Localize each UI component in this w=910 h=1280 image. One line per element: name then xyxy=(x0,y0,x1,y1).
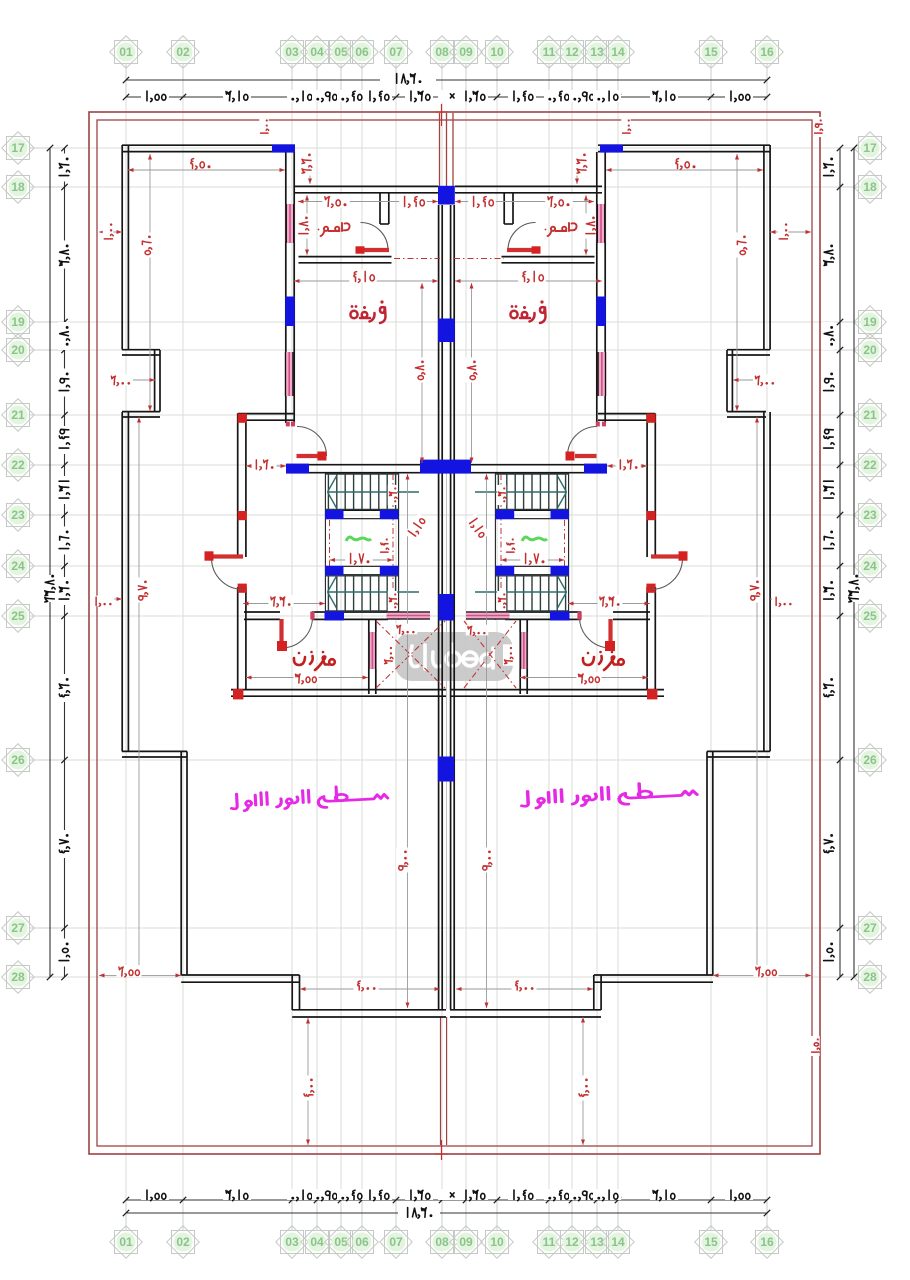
svg-text:04: 04 xyxy=(310,45,324,59)
svg-text:01: 01 xyxy=(119,1235,133,1249)
svg-text:08: 08 xyxy=(435,45,449,59)
svg-text:17: 17 xyxy=(11,141,25,155)
svg-text:12: 12 xyxy=(565,45,579,59)
svg-text:11: 11 xyxy=(543,1235,556,1249)
svg-text:17: 17 xyxy=(863,141,877,155)
svg-text:08: 08 xyxy=(435,1235,449,1249)
svg-text:22: 22 xyxy=(863,458,877,472)
svg-text:19: 19 xyxy=(11,315,25,329)
svg-text:18: 18 xyxy=(863,180,877,194)
svg-text:04: 04 xyxy=(310,1235,324,1249)
svg-text:16: 16 xyxy=(760,1235,774,1249)
svg-text:06: 06 xyxy=(355,1235,369,1249)
svg-text:27: 27 xyxy=(11,921,25,935)
svg-text:06: 06 xyxy=(355,45,369,59)
svg-text:24: 24 xyxy=(11,559,25,573)
svg-text:03: 03 xyxy=(285,45,299,59)
svg-text:09: 09 xyxy=(459,45,473,59)
svg-text:09: 09 xyxy=(459,1235,473,1249)
svg-text:24: 24 xyxy=(863,559,877,573)
svg-text:02: 02 xyxy=(176,1235,190,1249)
svg-text:19: 19 xyxy=(863,315,877,329)
svg-text:15: 15 xyxy=(704,45,718,59)
svg-text:10: 10 xyxy=(490,45,504,59)
svg-text:14: 14 xyxy=(611,45,625,59)
svg-text:15: 15 xyxy=(704,1235,718,1249)
svg-text:23: 23 xyxy=(863,508,877,522)
svg-text:11: 11 xyxy=(543,45,556,59)
svg-text:26: 26 xyxy=(863,753,877,767)
svg-text:27: 27 xyxy=(863,921,877,935)
svg-text:26: 26 xyxy=(11,753,25,767)
svg-text:07: 07 xyxy=(389,1235,403,1249)
svg-text:02: 02 xyxy=(176,45,190,59)
svg-text:14: 14 xyxy=(611,1235,625,1249)
svg-text:12: 12 xyxy=(565,1235,579,1249)
svg-text:25: 25 xyxy=(863,609,877,623)
svg-text:01: 01 xyxy=(119,45,133,59)
svg-text:23: 23 xyxy=(11,508,25,522)
svg-text:20: 20 xyxy=(863,343,877,357)
svg-text:10: 10 xyxy=(490,1235,504,1249)
svg-text:03: 03 xyxy=(285,1235,299,1249)
svg-text:25: 25 xyxy=(11,609,25,623)
svg-text:07: 07 xyxy=(389,45,403,59)
svg-text:21: 21 xyxy=(863,408,877,422)
svg-text:21: 21 xyxy=(11,408,25,422)
svg-text:22: 22 xyxy=(11,458,25,472)
svg-text:28: 28 xyxy=(11,970,25,984)
svg-text:18: 18 xyxy=(11,180,25,194)
svg-text:20: 20 xyxy=(11,343,25,357)
svg-text:28: 28 xyxy=(863,970,877,984)
svg-text:16: 16 xyxy=(760,45,774,59)
